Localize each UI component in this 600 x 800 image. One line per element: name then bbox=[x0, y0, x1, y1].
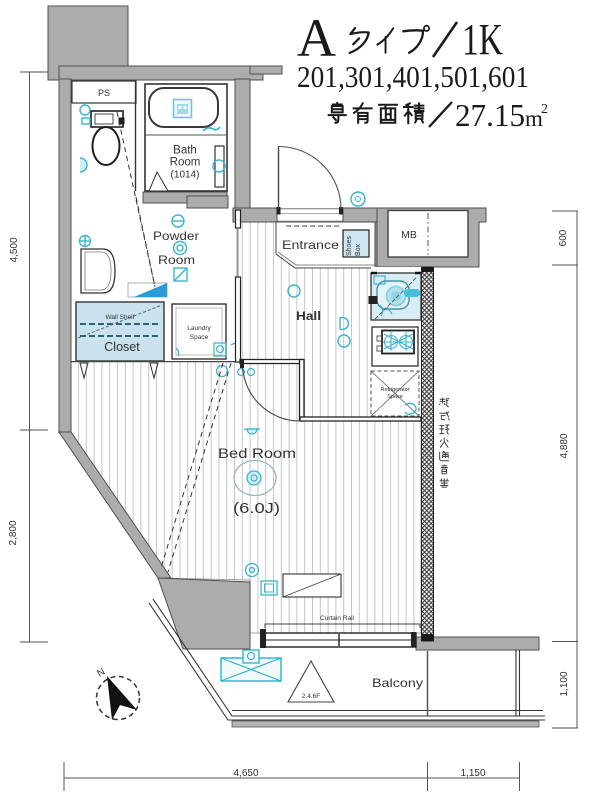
svg-text:PS: PS bbox=[98, 88, 110, 98]
svg-text:Laundry: Laundry bbox=[187, 325, 211, 332]
svg-text:201,301,401,501,601: 201,301,401,501,601 bbox=[297, 59, 529, 94]
svg-text:4,650: 4,650 bbox=[233, 768, 258, 779]
svg-text:2,800: 2,800 bbox=[8, 520, 19, 545]
svg-text:Refrigerator: Refrigerator bbox=[380, 387, 409, 393]
svg-text:Space: Space bbox=[190, 334, 209, 341]
svg-text:1,100: 1,100 bbox=[559, 671, 570, 696]
svg-text:Closet: Closet bbox=[104, 340, 140, 354]
svg-text:Space: Space bbox=[387, 394, 403, 400]
svg-text:Entrance: Entrance bbox=[282, 238, 339, 252]
svg-text:(1014): (1014) bbox=[171, 170, 200, 181]
svg-text:Room: Room bbox=[158, 253, 195, 267]
svg-text:MB: MB bbox=[401, 229, 417, 241]
svg-text:Room: Room bbox=[170, 157, 201, 169]
svg-text:2: 2 bbox=[541, 102, 548, 117]
svg-text:Box: Box bbox=[355, 243, 362, 256]
svg-text:Powder: Powder bbox=[153, 229, 199, 243]
svg-text:Curtain Rail: Curtain Rail bbox=[320, 615, 355, 622]
svg-text:Hall: Hall bbox=[296, 309, 321, 323]
svg-text:Shoes: Shoes bbox=[346, 236, 353, 256]
svg-text:1K: 1K bbox=[462, 15, 503, 64]
svg-text:4,880: 4,880 bbox=[559, 433, 570, 458]
svg-text:Bed Room: Bed Room bbox=[218, 445, 296, 461]
svg-text:(6.0J): (6.0J) bbox=[233, 501, 280, 517]
svg-text:4,500: 4,500 bbox=[9, 237, 20, 262]
svg-text:Balcony: Balcony bbox=[372, 676, 423, 690]
svg-text:Bath: Bath bbox=[173, 145, 197, 157]
svg-text:2.4.6F: 2.4.6F bbox=[302, 693, 320, 700]
svg-text:1,150: 1,150 bbox=[460, 768, 485, 779]
svg-text:27.15: 27.15 bbox=[455, 97, 525, 133]
svg-text:600: 600 bbox=[558, 229, 569, 246]
